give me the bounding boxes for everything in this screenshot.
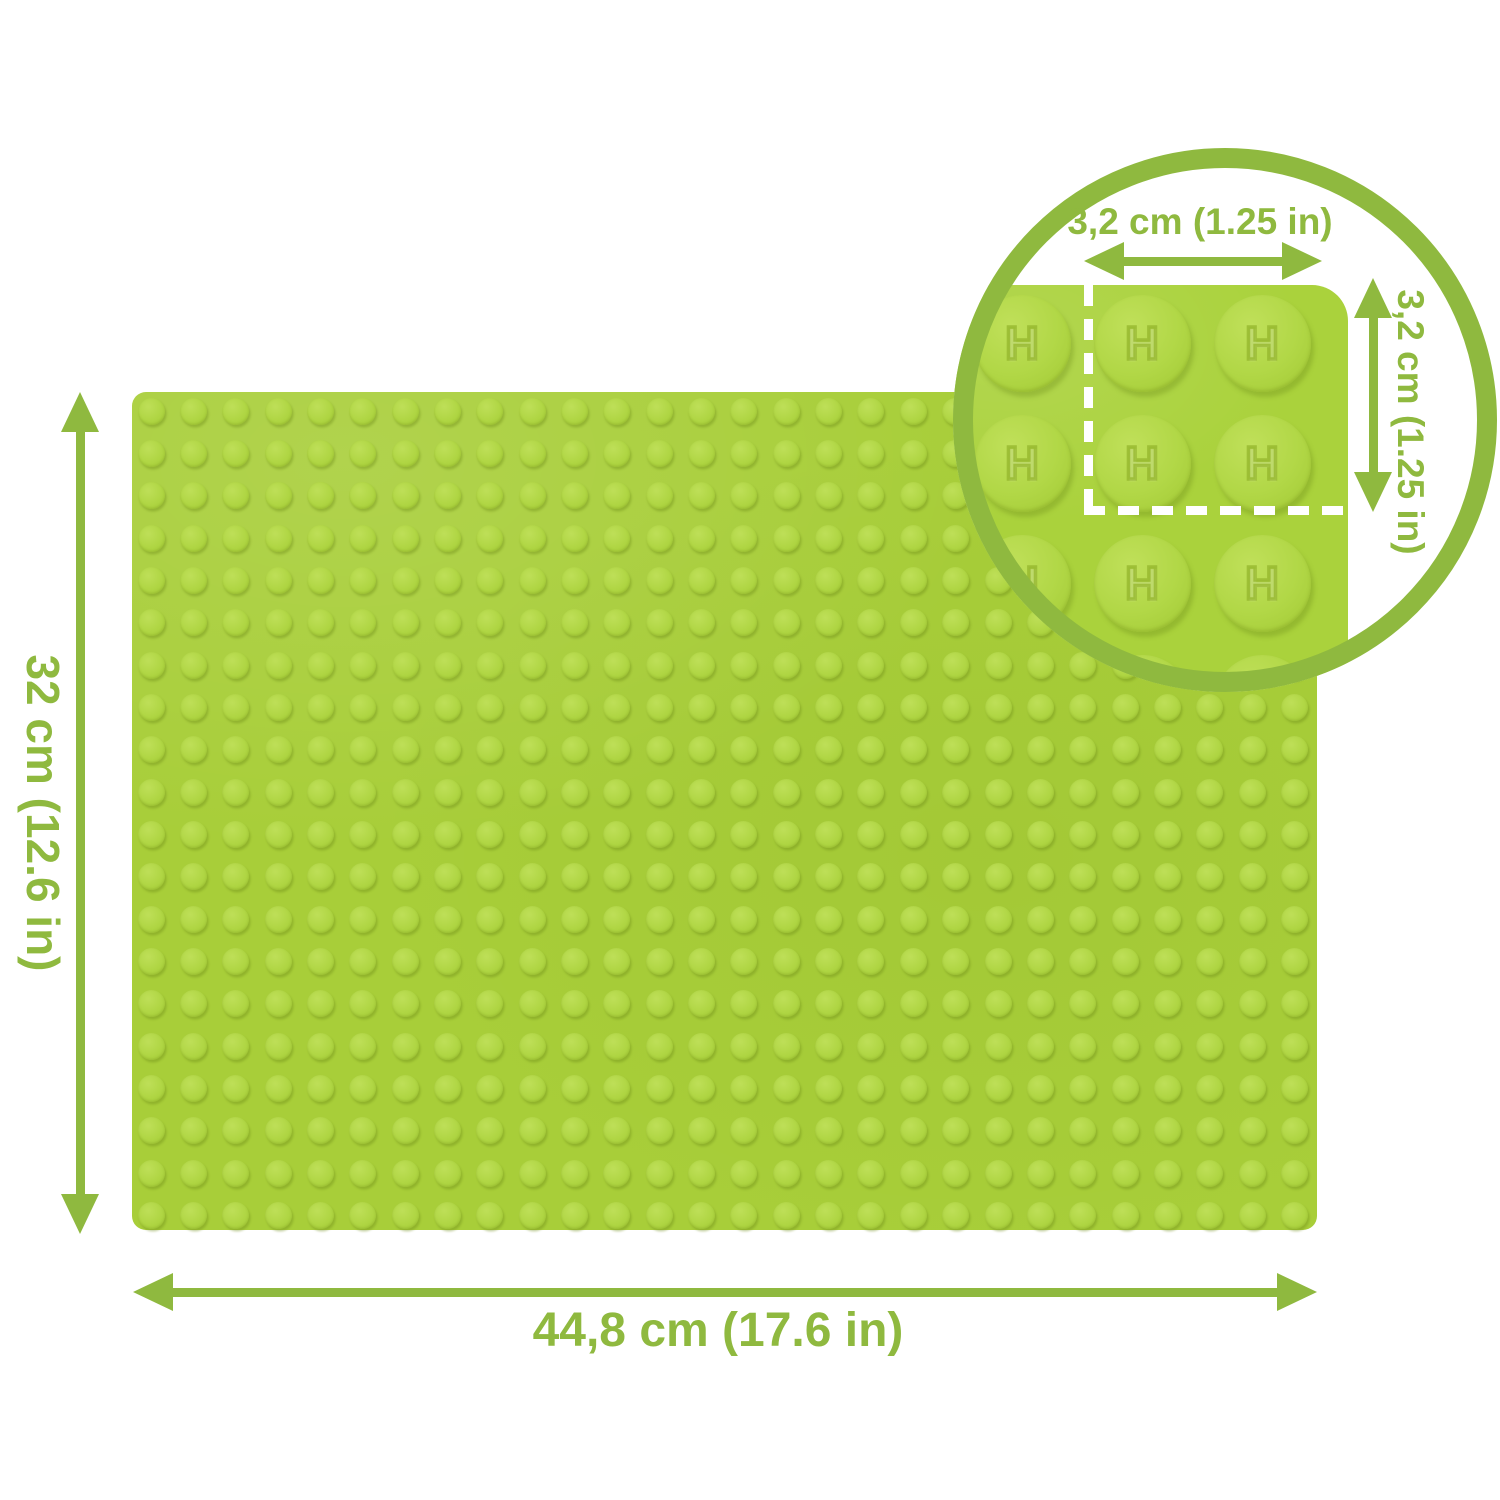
stud — [730, 398, 757, 425]
stud — [138, 609, 165, 636]
width-dimension-label: 44,8 cm (17.6 in) — [518, 1306, 918, 1356]
stud — [942, 821, 969, 848]
stud — [476, 1033, 503, 1060]
stud — [180, 1202, 207, 1229]
stud — [519, 1160, 546, 1187]
stud — [519, 609, 546, 636]
stud — [265, 1075, 292, 1102]
stud — [561, 609, 588, 636]
stud — [603, 440, 630, 467]
stud — [476, 736, 503, 763]
stud — [1112, 736, 1139, 763]
stud — [646, 906, 673, 933]
stud — [434, 1202, 461, 1229]
stud — [646, 525, 673, 552]
stud — [138, 990, 165, 1017]
stud — [476, 948, 503, 975]
stud — [392, 1160, 419, 1187]
stud — [1281, 990, 1308, 1017]
stud — [222, 990, 249, 1017]
stud — [222, 652, 249, 679]
stud — [857, 821, 884, 848]
stud — [476, 567, 503, 594]
stud — [603, 906, 630, 933]
stud — [773, 736, 800, 763]
stud — [773, 525, 800, 552]
stud — [476, 398, 503, 425]
stud — [815, 482, 842, 509]
stud — [180, 821, 207, 848]
stud — [434, 1075, 461, 1102]
stud — [476, 525, 503, 552]
stud — [730, 609, 757, 636]
stud — [222, 694, 249, 721]
product-dimension-diagram: 32 cm (12.6 in) 44,8 cm (17.6 in) HHHHHH… — [0, 0, 1500, 1500]
stud — [1281, 821, 1308, 848]
stud — [730, 525, 757, 552]
stud — [900, 694, 927, 721]
stud — [561, 736, 588, 763]
stud — [349, 990, 376, 1017]
stud — [603, 398, 630, 425]
stud — [392, 1202, 419, 1229]
stud — [1281, 1202, 1308, 1229]
arrow-shaft — [1118, 257, 1288, 266]
stud — [1027, 1202, 1054, 1229]
stud — [307, 525, 334, 552]
stud — [1281, 736, 1308, 763]
stud — [1281, 948, 1308, 975]
stud — [730, 863, 757, 890]
stud — [773, 567, 800, 594]
stud — [180, 567, 207, 594]
stud — [857, 990, 884, 1017]
stud — [1112, 948, 1139, 975]
stud — [1154, 1202, 1181, 1229]
stud — [688, 567, 715, 594]
stud — [180, 694, 207, 721]
stud — [180, 990, 207, 1017]
stud — [773, 1117, 800, 1144]
stud — [688, 863, 715, 890]
stud — [646, 482, 673, 509]
stud — [307, 821, 334, 848]
stud — [688, 1202, 715, 1229]
stud — [519, 948, 546, 975]
stud — [349, 906, 376, 933]
stud — [730, 1160, 757, 1187]
stud — [1196, 1033, 1223, 1060]
stud — [942, 779, 969, 806]
stud — [434, 863, 461, 890]
stud — [985, 906, 1012, 933]
stud — [519, 779, 546, 806]
stud — [688, 779, 715, 806]
stud — [1069, 1033, 1096, 1060]
stud — [857, 440, 884, 467]
stud — [1281, 906, 1308, 933]
stud — [1112, 863, 1139, 890]
stud — [265, 1033, 292, 1060]
stud — [476, 609, 503, 636]
stud — [138, 1033, 165, 1060]
stud — [1196, 863, 1223, 890]
stud — [815, 736, 842, 763]
stud — [942, 694, 969, 721]
stud — [688, 948, 715, 975]
stud — [603, 1117, 630, 1144]
stud — [857, 609, 884, 636]
stud — [942, 1075, 969, 1102]
stud — [646, 1117, 673, 1144]
stud — [434, 736, 461, 763]
stud — [392, 1075, 419, 1102]
stud — [646, 1202, 673, 1229]
stud — [392, 440, 419, 467]
stud — [646, 398, 673, 425]
stud — [900, 1075, 927, 1102]
stud — [392, 1033, 419, 1060]
stud — [773, 906, 800, 933]
stud — [307, 906, 334, 933]
stud — [222, 736, 249, 763]
stud — [561, 567, 588, 594]
stud — [1112, 1033, 1139, 1060]
stud — [561, 482, 588, 509]
stud — [307, 609, 334, 636]
stud — [900, 525, 927, 552]
stud — [1154, 1160, 1181, 1187]
stud — [900, 779, 927, 806]
stud — [646, 694, 673, 721]
stud — [1239, 821, 1266, 848]
stud — [985, 1117, 1012, 1144]
stud — [773, 1075, 800, 1102]
stud — [1239, 1160, 1266, 1187]
stud — [519, 482, 546, 509]
stud — [688, 736, 715, 763]
stud — [603, 990, 630, 1017]
stud — [857, 1202, 884, 1229]
stud — [392, 1117, 419, 1144]
stud — [519, 398, 546, 425]
stud — [476, 1117, 503, 1144]
stud — [307, 779, 334, 806]
stud — [434, 948, 461, 975]
stud — [476, 694, 503, 721]
stud — [646, 652, 673, 679]
stud — [180, 440, 207, 467]
stud — [646, 948, 673, 975]
stud — [519, 1202, 546, 1229]
stud — [476, 990, 503, 1017]
stud — [265, 652, 292, 679]
stud — [730, 482, 757, 509]
stud — [434, 398, 461, 425]
stud — [1239, 1033, 1266, 1060]
stud — [1069, 906, 1096, 933]
stud — [857, 694, 884, 721]
stud — [646, 1160, 673, 1187]
stud — [985, 863, 1012, 890]
stud — [222, 1117, 249, 1144]
stud — [392, 525, 419, 552]
stud — [730, 779, 757, 806]
stud — [688, 482, 715, 509]
stud — [857, 948, 884, 975]
stud — [1196, 736, 1223, 763]
stud — [138, 779, 165, 806]
stud — [688, 1075, 715, 1102]
stud — [392, 948, 419, 975]
stud — [857, 525, 884, 552]
stud — [265, 525, 292, 552]
stud — [815, 1075, 842, 1102]
stud — [815, 821, 842, 848]
stud — [349, 821, 376, 848]
stud — [688, 821, 715, 848]
stud — [1196, 1117, 1223, 1144]
stud — [349, 609, 376, 636]
stud — [688, 525, 715, 552]
stud — [985, 1160, 1012, 1187]
stud — [180, 1033, 207, 1060]
stud-logo: H — [1005, 680, 1038, 692]
stud — [349, 482, 376, 509]
stud — [1154, 1075, 1181, 1102]
stud — [138, 567, 165, 594]
stud — [265, 906, 292, 933]
stud — [561, 948, 588, 975]
stud — [476, 821, 503, 848]
stud — [138, 1075, 165, 1102]
stud — [1196, 779, 1223, 806]
stud — [942, 1160, 969, 1187]
stud — [815, 990, 842, 1017]
stud — [815, 398, 842, 425]
stud — [222, 525, 249, 552]
stud — [1112, 1202, 1139, 1229]
stud — [307, 694, 334, 721]
stud-pitch-width-label: 3,2 cm (1.25 in) — [1050, 200, 1350, 244]
stud — [392, 990, 419, 1017]
stud — [519, 990, 546, 1017]
stud — [519, 1117, 546, 1144]
stud — [265, 779, 292, 806]
stud — [180, 863, 207, 890]
stud — [1154, 906, 1181, 933]
stud — [857, 1075, 884, 1102]
stud — [349, 694, 376, 721]
stud — [1239, 948, 1266, 975]
stud — [392, 779, 419, 806]
stud — [1069, 990, 1096, 1017]
stud — [392, 398, 419, 425]
stud — [1112, 1117, 1139, 1144]
arrow-right-icon — [1277, 1273, 1317, 1311]
stud — [603, 821, 630, 848]
stud — [222, 821, 249, 848]
stud — [561, 1075, 588, 1102]
stud — [476, 440, 503, 467]
stud — [561, 1160, 588, 1187]
stud — [646, 990, 673, 1017]
stud — [815, 694, 842, 721]
stud — [730, 1117, 757, 1144]
stud — [180, 609, 207, 636]
stud — [222, 863, 249, 890]
stud — [1239, 736, 1266, 763]
arrow-shaft — [167, 1288, 1283, 1297]
stud — [646, 863, 673, 890]
stud — [1027, 1033, 1054, 1060]
stud — [1112, 821, 1139, 848]
stud-pitch-height-label: 3,2 cm (1.25 in) — [1388, 272, 1432, 572]
stud — [603, 609, 630, 636]
stud — [942, 736, 969, 763]
stud — [646, 567, 673, 594]
stud — [222, 567, 249, 594]
arrow-shaft — [1369, 312, 1378, 478]
stud — [900, 440, 927, 467]
stud — [222, 906, 249, 933]
stud — [561, 990, 588, 1017]
stud — [138, 736, 165, 763]
stud — [180, 948, 207, 975]
stud — [773, 990, 800, 1017]
stud — [1196, 1075, 1223, 1102]
stud — [349, 398, 376, 425]
stud — [1154, 948, 1181, 975]
stud — [222, 440, 249, 467]
stud — [985, 1033, 1012, 1060]
stud — [900, 482, 927, 509]
stud — [1027, 863, 1054, 890]
stud — [1196, 1160, 1223, 1187]
stud — [857, 1160, 884, 1187]
stud — [603, 525, 630, 552]
arrow-down-icon — [61, 1194, 99, 1234]
stud — [857, 482, 884, 509]
arrow-shaft — [76, 426, 85, 1200]
stud — [307, 440, 334, 467]
stud — [392, 567, 419, 594]
stud — [646, 821, 673, 848]
stud — [349, 1117, 376, 1144]
stud — [603, 694, 630, 721]
stud — [985, 990, 1012, 1017]
stud — [307, 1117, 334, 1144]
stud — [434, 440, 461, 467]
stud — [900, 1202, 927, 1229]
stud — [307, 482, 334, 509]
stud — [392, 694, 419, 721]
stud — [1281, 1075, 1308, 1102]
stud — [603, 1075, 630, 1102]
stud — [857, 863, 884, 890]
stud — [942, 948, 969, 975]
stud — [730, 906, 757, 933]
stud — [1069, 1075, 1096, 1102]
stud — [561, 1033, 588, 1060]
stud — [476, 652, 503, 679]
stud — [1281, 694, 1308, 721]
stud — [265, 398, 292, 425]
stud — [900, 990, 927, 1017]
stud — [815, 567, 842, 594]
stud — [434, 609, 461, 636]
stud — [1112, 906, 1139, 933]
stud — [773, 609, 800, 636]
stud — [476, 1202, 503, 1229]
stud — [1196, 694, 1223, 721]
stud — [222, 1202, 249, 1229]
stud — [265, 1117, 292, 1144]
stud — [985, 779, 1012, 806]
stud — [392, 482, 419, 509]
stud — [1239, 694, 1266, 721]
stud — [138, 482, 165, 509]
stud — [349, 1202, 376, 1229]
stud — [561, 906, 588, 933]
stud — [434, 1117, 461, 1144]
stud — [476, 863, 503, 890]
stud — [942, 1117, 969, 1144]
stud — [561, 694, 588, 721]
stud — [434, 694, 461, 721]
stud — [688, 398, 715, 425]
stud — [222, 1160, 249, 1187]
stud — [307, 736, 334, 763]
stud — [392, 863, 419, 890]
stud — [1154, 863, 1181, 890]
stud — [392, 821, 419, 848]
stud — [561, 398, 588, 425]
stud — [1027, 1117, 1054, 1144]
stud — [1196, 906, 1223, 933]
stud — [942, 1033, 969, 1060]
stud — [138, 525, 165, 552]
stud — [1027, 1160, 1054, 1187]
stud — [646, 736, 673, 763]
stud — [392, 736, 419, 763]
stud — [603, 779, 630, 806]
stud — [603, 567, 630, 594]
stud — [1112, 779, 1139, 806]
stud — [222, 1075, 249, 1102]
stud — [646, 1033, 673, 1060]
stud — [180, 906, 207, 933]
stud — [985, 1075, 1012, 1102]
stud — [773, 948, 800, 975]
stud — [307, 567, 334, 594]
stud — [603, 652, 630, 679]
stud — [519, 821, 546, 848]
stud — [730, 1075, 757, 1102]
stud — [815, 1160, 842, 1187]
stud — [730, 1033, 757, 1060]
stud — [434, 525, 461, 552]
stud — [603, 1160, 630, 1187]
stud — [1027, 821, 1054, 848]
stud — [985, 1202, 1012, 1229]
stud — [349, 652, 376, 679]
stud — [1069, 694, 1096, 721]
stud — [730, 821, 757, 848]
stud — [180, 482, 207, 509]
stud — [857, 779, 884, 806]
stud — [1069, 1117, 1096, 1144]
